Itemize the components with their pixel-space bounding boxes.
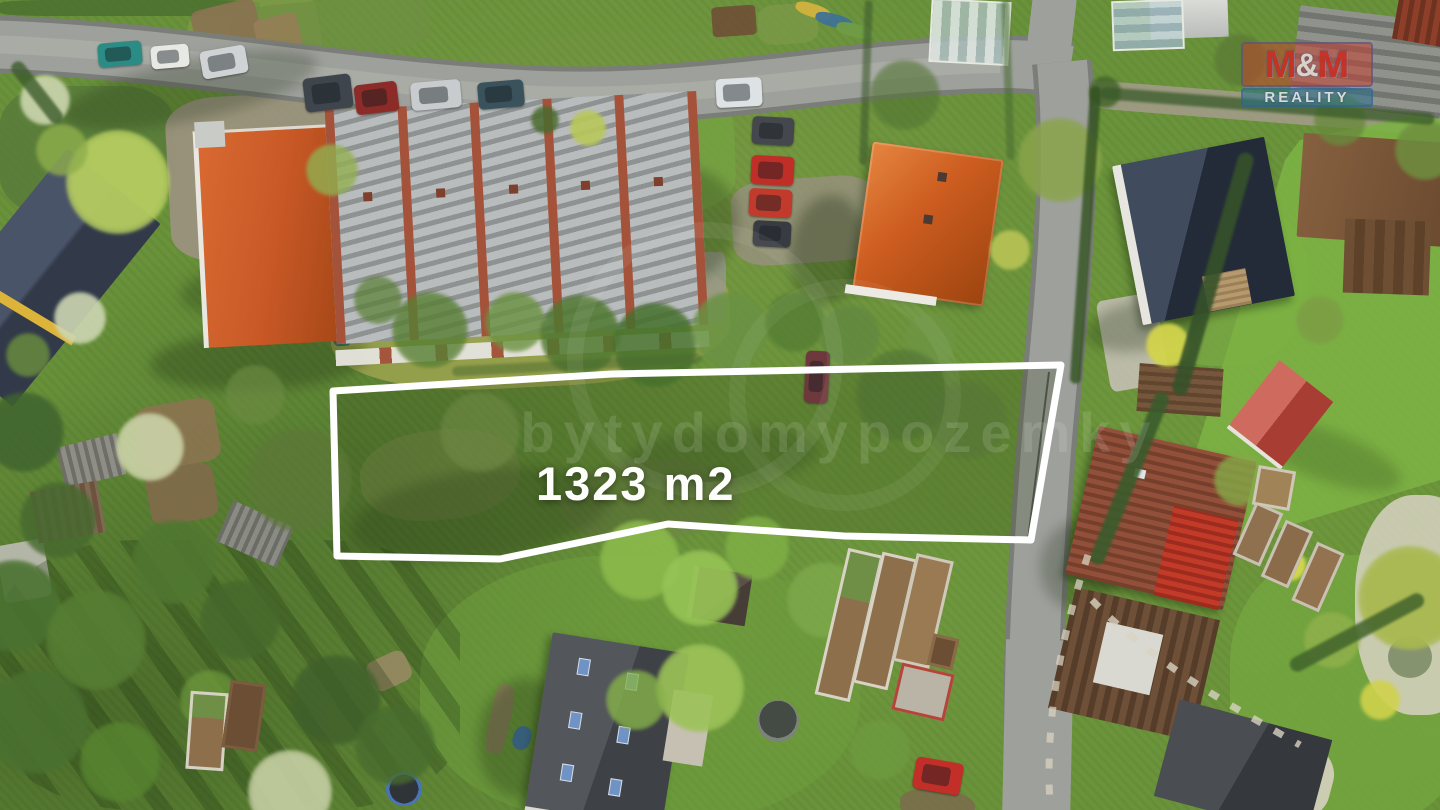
agency-logo: M&M REALITY — [1241, 42, 1373, 107]
watermark-text: bytydomypozemky — [520, 401, 1159, 464]
logo-ampersand: & — [1295, 49, 1318, 81]
watermark-emblem — [737, 287, 953, 503]
overlay-layer: bytydomypozemky — [0, 0, 1440, 810]
aerial-photo: bytydomypozemky 1323 m2 M&M REALITY — [0, 0, 1440, 810]
agency-logo-mark: M&M — [1241, 42, 1373, 87]
plot-area-label: 1323 m2 — [536, 456, 736, 511]
logo-letter-m: M — [1318, 46, 1350, 84]
agency-logo-word: REALITY — [1241, 88, 1373, 107]
stepping-stone-path — [1092, 600, 1300, 745]
stepping-stone-path — [1049, 555, 1088, 805]
logo-letter-m: M — [1265, 46, 1297, 84]
